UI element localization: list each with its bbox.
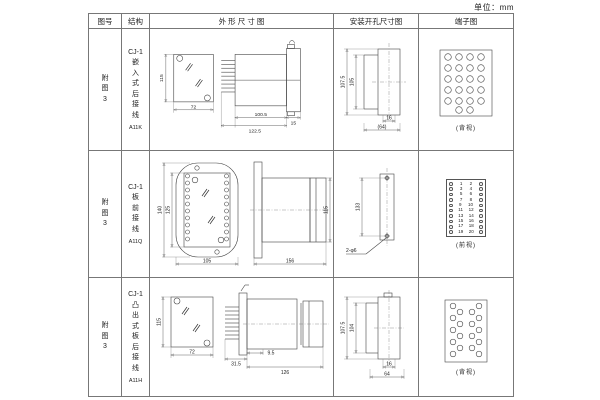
terminal-circle [479,214,483,218]
outline-cell-row3: 115 72 31.5 [150,278,334,396]
dim-107-5: 107.5 [341,322,347,335]
header-figure: 图号 [89,14,122,29]
mounting-cell-row1: 107.5 105 16 (64) [334,29,419,151]
figure-label: 附 图 3 [102,321,109,353]
dim-115s: 115 [323,206,329,214]
dim-133: 133 [356,203,362,212]
terminal-number: 20 [469,230,474,235]
dim-15: 15 [290,120,296,126]
terminal-drawing-front-row2: 1234567891011121314151617181920 [446,179,486,237]
dim-115: 115 [158,73,164,81]
dim-105: 105 [350,77,356,86]
terminal-cell-row1: (背视) [419,29,513,151]
terminal-cell-row2: 1234567891011121314151617181920 (前视) [419,151,513,278]
outline-drawing-row3: 115 72 31.5 [151,283,333,391]
figure-cell-row3: 附 图 3 [89,278,122,396]
terminal-drawing-back-row3 [441,298,491,364]
mounting-cell-row3: 107.5 104 16 64 [334,278,419,396]
terminal-circle [449,214,453,218]
view-label-row3: (背视) [456,367,476,376]
dimension-table: 图号 结构 外 形 尺 寸 图 安装开孔尺寸图 端子图 附 图 3 CJ-1 嵌… [88,13,514,397]
dim-156: 156 [285,259,294,265]
manual-page: 单位：mm 图号 结构 外 形 尺 寸 图 安装开孔尺寸图 端子图 附 图 3 … [0,0,600,400]
header-structure: 结构 [122,14,150,29]
dim-104: 104 [350,324,356,333]
terminal-cell-row3: (背视) [419,278,513,396]
structure-cell-row1: CJ-1 嵌 入 式 后 接 线 A11K [122,29,150,151]
outline-cell-row1: 115 72 100.5 15 [150,29,334,151]
terminal-circle [479,193,483,197]
mounting-cell-row2: 133 2-φ6 [334,151,419,278]
dim-31-5: 31.5 [231,362,241,368]
terminal-circle [449,193,453,197]
terminal-circle [449,198,453,202]
structure-cell-row3: CJ-1 凸 出 式 板 后 接 线 A11H [122,278,150,396]
terminal-circle [479,198,483,202]
terminal-pair: 1920 [449,230,483,235]
model-code: A11H [129,378,142,384]
dim-64: (64) [378,124,387,130]
terminal-circle [479,220,483,224]
dim-122-5: 122.5 [248,128,261,134]
structure-label: CJ-1 凸 出 式 板 后 接 线 [128,290,143,374]
dim-72: 72 [189,350,195,356]
dim-115: 115 [156,318,162,326]
dim-100-5: 100.5 [254,112,267,118]
terminal-pair: 1516 [449,219,483,224]
terminal-circle [449,230,453,234]
dim-9-5: 9.5 [267,351,274,357]
view-label-row2: (前视) [456,240,476,249]
mounting-drawing-row1: 107.5 105 16 (64) [334,39,418,141]
outline-cell-row2: 140 125 105 156 115 [150,151,334,278]
terminal-circle [449,187,453,191]
outline-drawing-row2: 140 125 105 156 115 [150,158,334,270]
terminal-circle [479,182,483,186]
dim-105w: 105 [202,259,211,265]
terminal-drawing-back-row1 [437,48,495,120]
dim-125: 125 [165,206,171,215]
model-code: A11K [129,125,142,131]
model-code: A11Q [129,239,143,245]
terminal-pair: 12 [449,181,483,186]
terminal-pair: 56 [449,192,483,197]
figure-cell-row2: 附 图 3 [89,151,122,278]
dim-126: 126 [280,370,289,376]
figure-label: 附 图 3 [102,198,109,230]
terminal-circle [449,204,453,208]
terminal-pair: 34 [449,187,483,192]
dim-16: 16 [386,115,392,121]
structure-label: CJ-1 嵌 入 式 后 接 线 [128,48,143,122]
terminal-circle [449,209,453,213]
unit-label: 单位：mm [474,2,514,13]
dim-107-5: 107.5 [341,75,347,88]
dim-64: 64 [384,372,390,378]
terminal-circle [449,225,453,229]
dim-72: 72 [190,104,196,110]
terminal-circle [479,230,483,234]
terminal-pair: 1314 [449,214,483,219]
terminal-circle [479,204,483,208]
header-mounting: 安装开孔尺寸图 [334,14,419,29]
mounting-drawing-row2: 133 2-φ6 [334,164,418,264]
outline-drawing-row1: 115 72 100.5 15 [152,38,332,142]
terminal-pair: 1718 [449,224,483,229]
terminal-number: 19 [458,230,463,235]
figure-label: 附 图 3 [102,74,109,106]
terminal-circle [479,209,483,213]
view-label-row1: (背视) [456,123,476,132]
terminal-pair: 1112 [449,208,483,213]
structure-label: CJ-1 板 前 接 线 [128,183,143,236]
figure-cell-row1: 附 图 3 [89,29,122,151]
terminal-pair: 910 [449,203,483,208]
hole-callout: 2-φ6 [346,248,357,254]
header-terminal: 端子图 [419,14,513,29]
dim-140: 140 [157,206,163,215]
dim-16: 16 [386,362,392,368]
terminal-circle [479,225,483,229]
mounting-drawing-row3: 107.5 104 16 64 [334,289,418,385]
structure-cell-row2: CJ-1 板 前 接 线 A11Q [122,151,150,278]
terminal-circle [449,220,453,224]
terminal-pair: 78 [449,197,483,202]
header-outline: 外 形 尺 寸 图 [150,14,334,29]
terminal-circle [449,182,453,186]
terminal-circle [479,187,483,191]
